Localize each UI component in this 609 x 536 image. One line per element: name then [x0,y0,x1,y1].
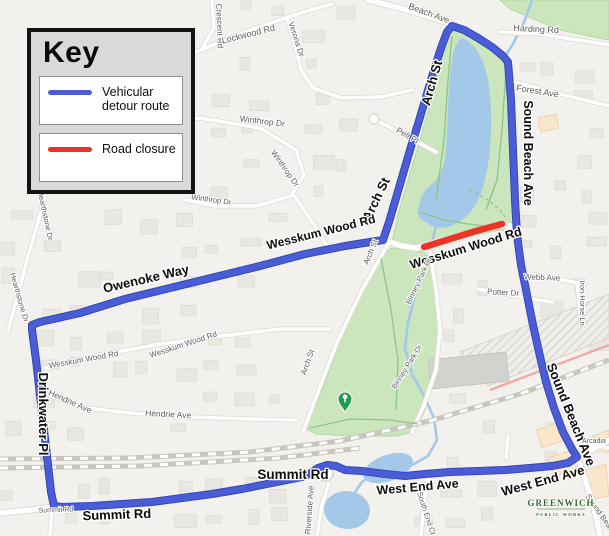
building [442,274,461,284]
building [249,509,259,524]
road-closure-swatch [48,147,92,152]
building [181,305,197,316]
svg-text:GREENWICH: GREENWICH [527,498,594,508]
building [105,210,121,225]
building [551,246,561,259]
street-label: Sound Beach Ave [521,100,535,205]
building [177,368,197,381]
building [108,332,123,343]
building [520,63,536,71]
building [590,129,604,138]
building [206,516,221,524]
building [99,478,109,494]
building [67,428,83,440]
building [269,213,287,221]
building [70,338,81,350]
building [212,95,230,107]
street-label: Drinkwater Pl [36,372,51,455]
building [171,424,186,432]
building [79,272,100,288]
building [541,62,553,75]
building [78,484,89,498]
building [142,308,158,324]
building [313,155,334,170]
building [179,482,192,495]
detour-route-swatch [48,90,92,95]
legend-item-road-closure: Road closure [39,133,183,182]
street-label: Webb Ave [524,272,561,282]
building [587,237,607,246]
building [240,239,261,246]
building [205,245,217,253]
building [589,212,607,224]
building [6,422,21,436]
greenwich-public-works-logo: GREENWICHPUBLIC WORKS [527,498,594,517]
building [238,276,255,288]
building [241,0,251,10]
key-title: Key [43,36,183,69]
building [272,508,288,521]
building [182,247,197,257]
legend-item-detour-route: Vehicular detour route [39,76,183,125]
building [44,240,61,251]
street-label: Summit Rd [82,506,151,523]
building [478,481,497,496]
building [204,361,218,370]
building [336,160,346,172]
building [337,6,355,19]
building [212,128,226,137]
building [136,362,147,374]
building [269,395,280,404]
building [235,338,250,347]
building [204,392,217,401]
road [506,437,508,458]
building [303,30,325,42]
building [0,491,12,501]
building [114,362,127,377]
street-label: Iron Horse Ln [578,280,587,325]
detour-route-label: Vehicular detour route [102,85,178,114]
building [555,180,566,190]
building [483,420,494,433]
building [314,186,323,197]
building [65,513,76,523]
street-label: Summit Rd [257,467,328,482]
building [340,119,358,131]
building [12,211,34,220]
building [481,508,493,521]
street-label: Potter Dr [487,287,520,298]
building [453,309,463,324]
building [1,242,14,255]
detour-map-flyer: Arch StArch StSound Beach AveWesskum Woo… [0,0,609,536]
building [576,71,595,84]
building [306,59,316,69]
building [582,191,591,204]
cul-de-sac [369,114,379,124]
road-closure-label: Road closure [102,142,178,156]
building [244,160,259,167]
building [444,330,454,342]
building [578,156,592,169]
street-label: Arcadia [582,438,606,445]
building [304,125,322,134]
building [240,57,250,70]
building [141,219,158,234]
svg-text:PUBLIC WORKS: PUBLIC WORKS [536,512,586,517]
key-panel: Key Vehicular detour route Road closure [27,28,195,194]
building [235,393,255,406]
street-label: Summit Rd [39,506,74,514]
building [237,365,257,375]
building [270,489,287,503]
building [176,213,193,226]
building [250,101,269,111]
building [175,515,197,528]
building [272,6,284,16]
building [446,518,465,527]
building [449,394,465,404]
